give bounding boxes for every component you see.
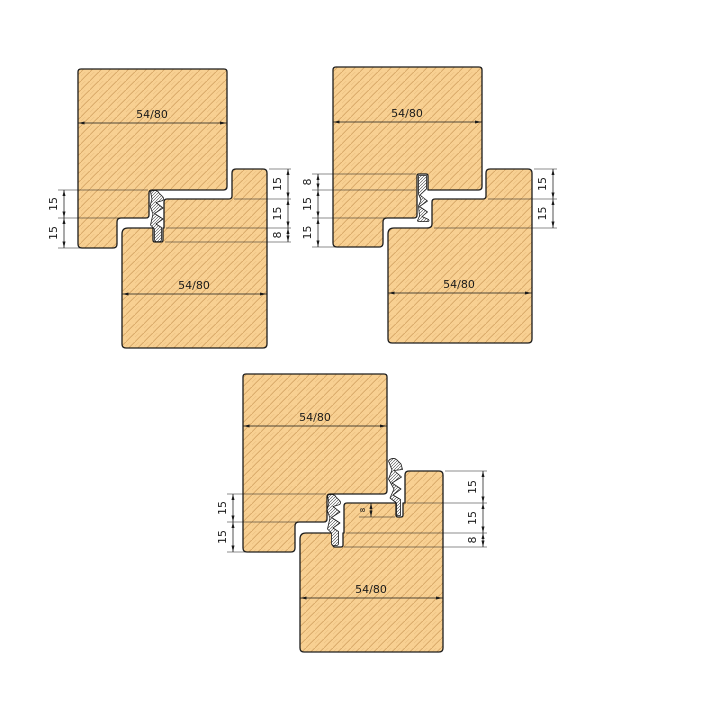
dim-label-seal-groove: 8 [359,508,367,512]
dim-label-left-2: 15 [216,530,229,544]
dim-label-bottom-width: 54/80 [355,583,387,596]
dim-label-right-2: 15 [536,207,549,221]
dim-label-right-3: 8 [271,232,284,239]
dim-label-right-1: 15 [466,480,479,494]
dim-label-left-1: 15 [47,197,60,211]
dim-label-right-2: 15 [271,207,284,221]
seal-gasket [417,176,429,222]
dim-label-right-1: 15 [536,177,549,191]
dim-label-right-2: 15 [466,511,479,525]
drawing-sheet: 54/80 54/80 15 15 15 15 8 54/80 54/80 8 … [0,0,720,720]
dim-label-left-3: 15 [301,226,314,240]
dim-label-right-3: 8 [466,537,479,544]
dim-label-top-width: 54/80 [136,108,168,121]
dim-label-bottom-width: 54/80 [443,278,475,291]
dim-label-left-2: 15 [301,197,314,211]
dim-label-bottom-width: 54/80 [178,279,210,292]
dim-label-left-1: 8 [301,179,314,186]
dim-label-top-width: 54/80 [391,107,423,120]
diagram-bottom-center: 54/80 54/80 15 15 15 15 8 8 [216,374,487,652]
joinery-sections-canvas: 54/80 54/80 15 15 15 15 8 54/80 54/80 8 … [0,0,720,720]
dim-label-right-1: 15 [271,177,284,191]
diagram-top-right: 54/80 54/80 8 15 15 15 15 [301,67,557,343]
dim-label-left-2: 15 [47,226,60,240]
dim-label-left-1: 15 [216,501,229,515]
dim-label-top-width: 54/80 [299,411,331,424]
diagram-top-left: 54/80 54/80 15 15 15 15 8 [47,69,291,348]
